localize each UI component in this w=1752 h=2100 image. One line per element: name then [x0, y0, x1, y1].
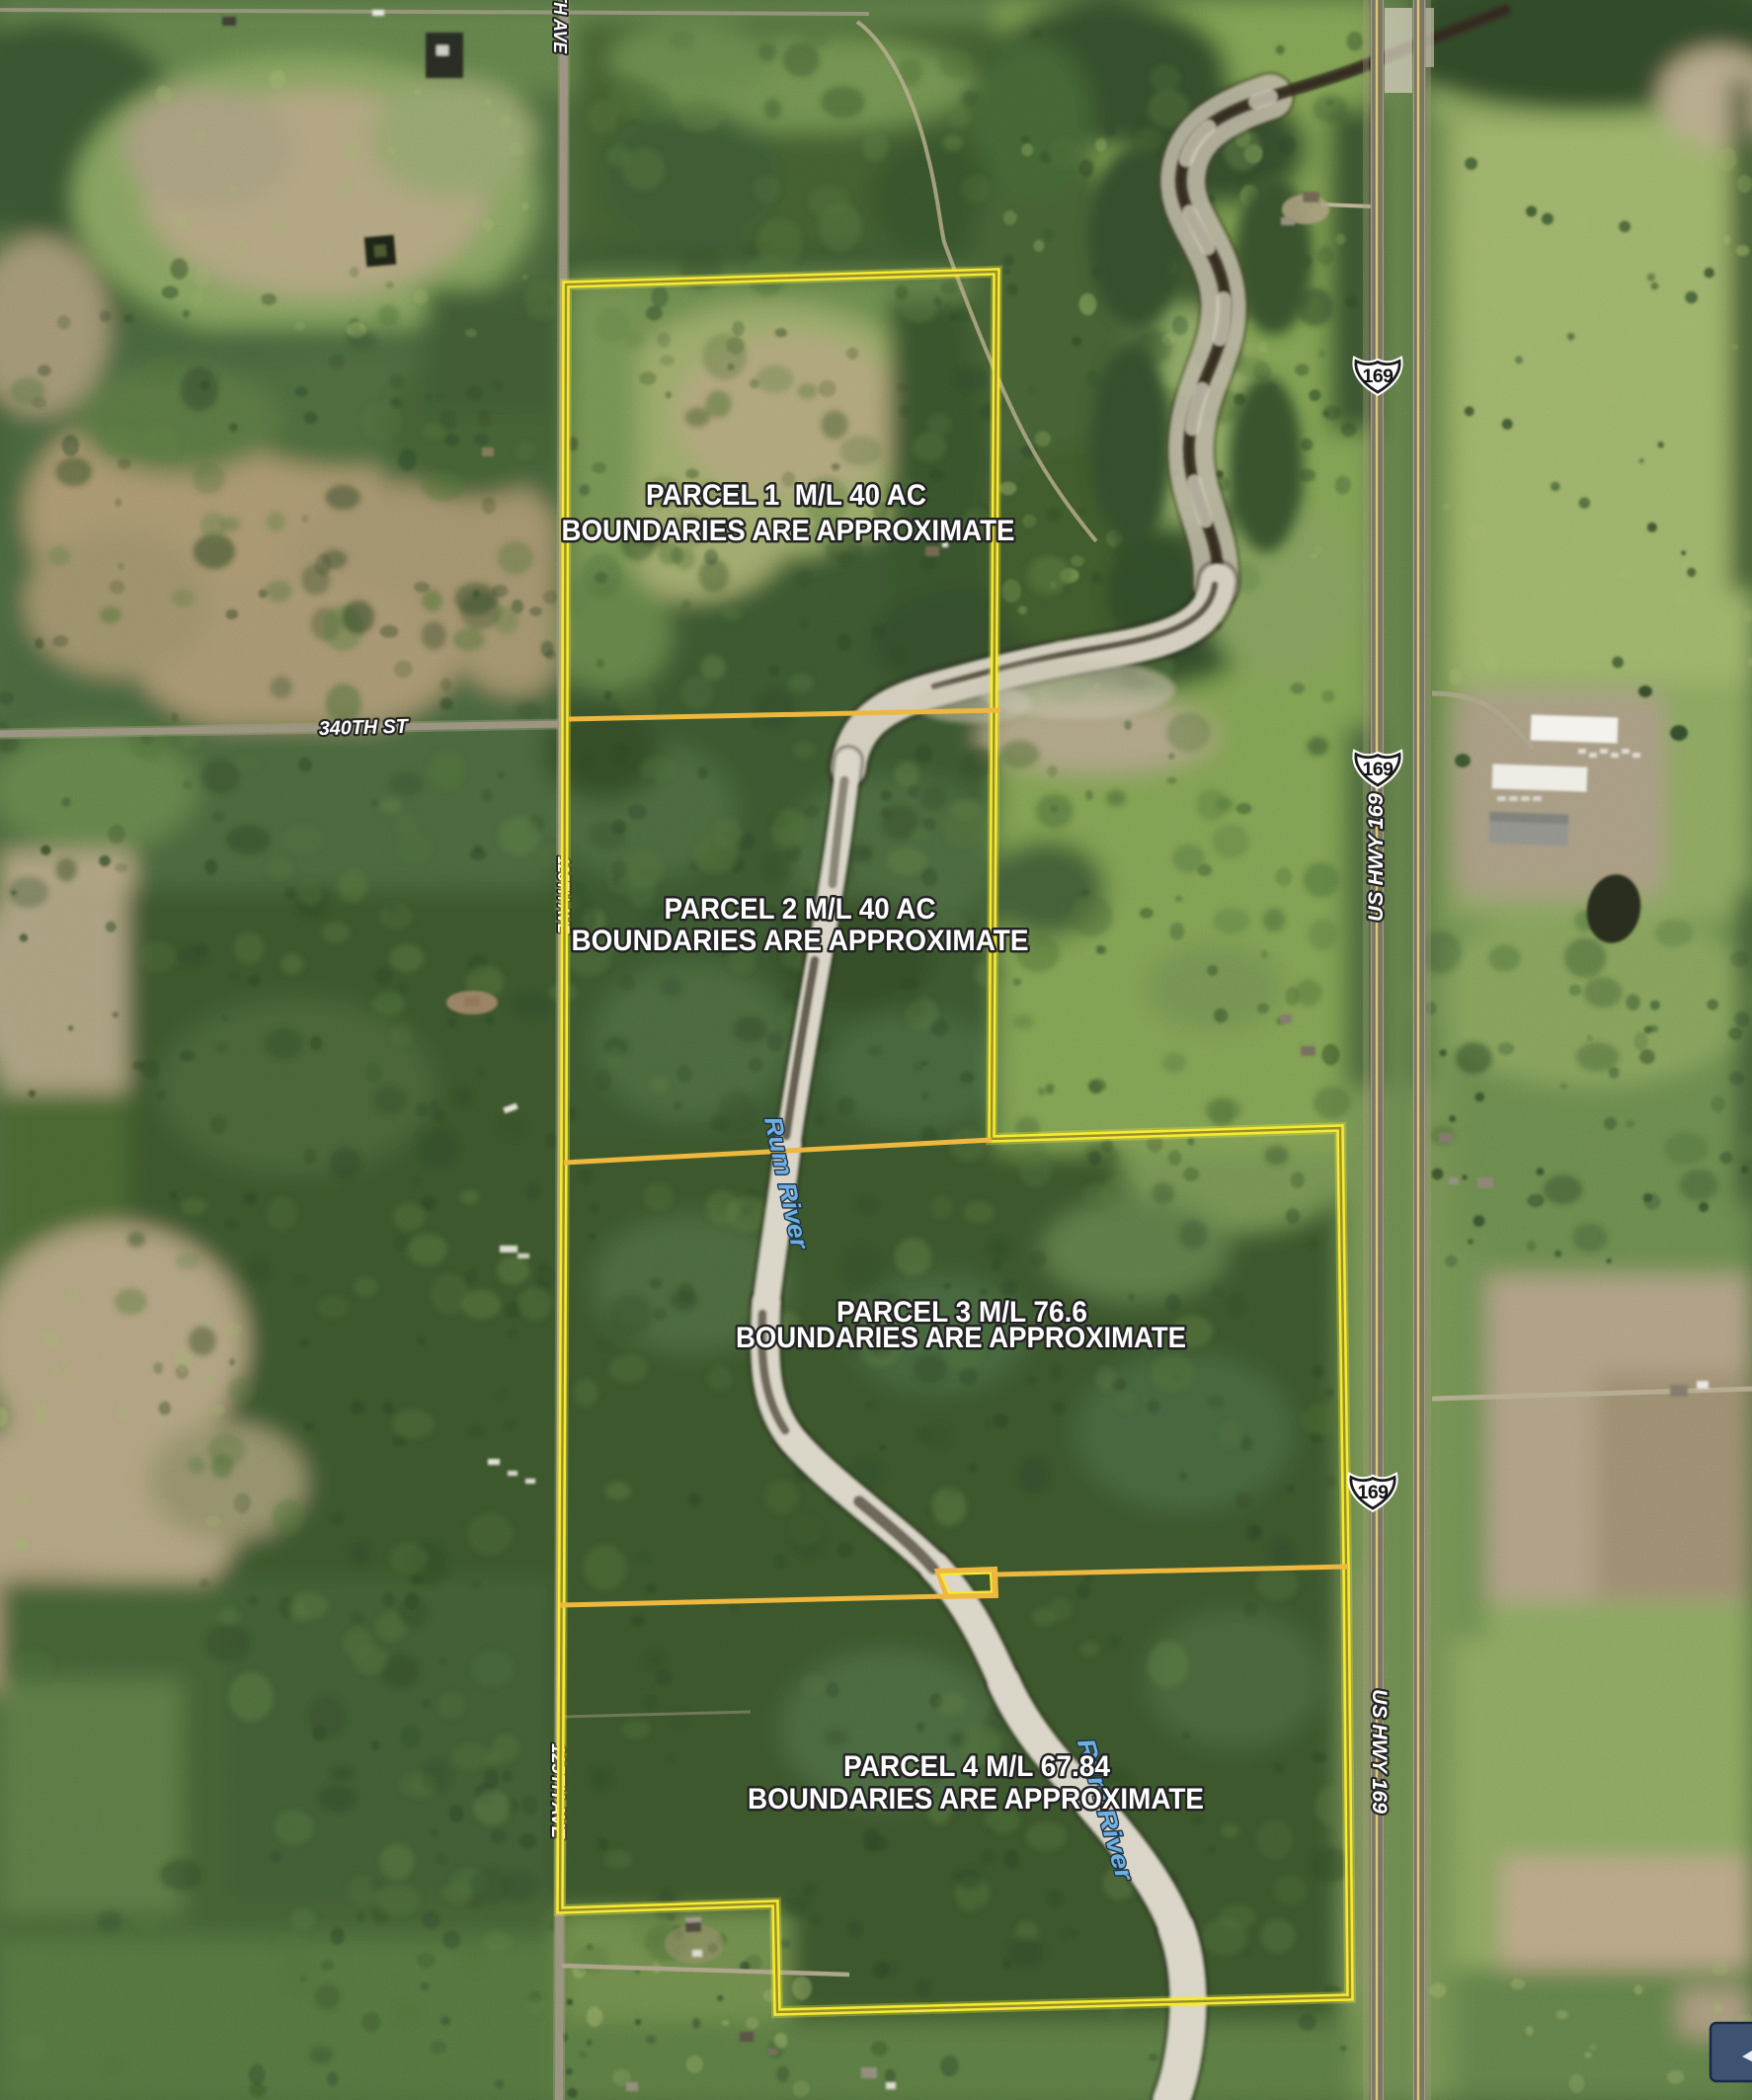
svg-text:BOUNDARIES ARE APPROXIMATE: BOUNDARIES ARE APPROXIMATE	[748, 1783, 1204, 1816]
svg-text:US HWY 169: US HWY 169	[1368, 1689, 1391, 1814]
svg-text:BOUNDARIES ARE APPROXIMATE: BOUNDARIES ARE APPROXIMATE	[572, 925, 1029, 957]
svg-text:125TH AVE: 125TH AVE	[550, 0, 570, 54]
svg-text:169: 169	[1362, 759, 1394, 780]
svg-text:PARCEL 4 M/L 67.84: PARCEL 4 M/L 67.84	[843, 1750, 1110, 1783]
svg-text:PARCEL 1 M/L 40 AC: PARCEL 1 M/L 40 AC	[646, 479, 926, 512]
svg-text:US HWY 169: US HWY 169	[1365, 793, 1388, 922]
svg-text:340TH ST: 340TH ST	[319, 716, 410, 740]
svg-text:PARCEL 2 M/L 40 AC: PARCEL 2 M/L 40 AC	[665, 893, 936, 926]
svg-text:BOUNDARIES ARE APPROXIMATE: BOUNDARIES ARE APPROXIMATE	[736, 1322, 1186, 1354]
svg-text:BOUNDARIES ARE APPROXIMATE: BOUNDARIES ARE APPROXIMATE	[562, 515, 1015, 547]
svg-text:169: 169	[1362, 365, 1394, 387]
svg-text:169: 169	[1357, 1482, 1389, 1503]
